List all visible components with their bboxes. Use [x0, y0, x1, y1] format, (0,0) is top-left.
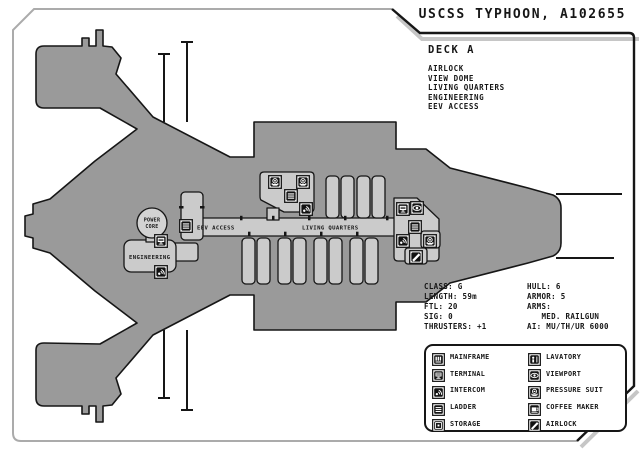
legend-column-right: LAVATORYVIEWPORTPRESSURE SUITCOFFEE MAKE…	[528, 349, 624, 430]
stats-column-right: HULL: 6ARMOR: 5ARMS: MED. RAILGUNAI: MU/…	[527, 282, 630, 332]
icon-legend: MAINFRAMETERMINALINTERCOMLADDERSTORAGE L…	[424, 344, 627, 432]
intercom-icon	[299, 201, 313, 215]
terminal-icon	[432, 367, 445, 380]
ladder-icon	[432, 401, 445, 414]
bunk	[278, 238, 291, 284]
bunk	[372, 176, 385, 218]
lavatory-icon	[528, 351, 541, 364]
stat-line: CLASS: G	[424, 282, 527, 292]
ship-registry-title: USCSS TYPHOON, A102655	[386, 7, 626, 22]
stat-line: SIG: 0	[424, 312, 527, 322]
pressure-suit-icon	[268, 174, 282, 188]
deck-feature: ENGINEERING	[428, 93, 505, 103]
legend-label: STORAGE	[450, 420, 481, 428]
deck-feature: AIRLOCK	[428, 64, 505, 74]
bunk	[357, 176, 370, 218]
airlock-icon	[528, 417, 541, 430]
legend-label: TERMINAL	[450, 370, 485, 378]
terminal-icon	[396, 201, 410, 215]
stat-line: AI: MU/TH/UR 6000	[527, 322, 630, 332]
intercom-icon	[154, 264, 168, 278]
pressure-suit-icon	[296, 174, 310, 188]
deck-feature: EEV ACCESS	[428, 102, 505, 112]
ladder-icon	[408, 219, 422, 233]
legend-label: AIRLOCK	[546, 420, 577, 428]
deck-feature-list: AIRLOCKVIEW DOMELIVING QUARTERSENGINEERI…	[428, 64, 505, 112]
stat-line: ARMS:	[527, 302, 630, 312]
engineering-label: ENGINEERING	[129, 255, 171, 261]
deck-feature: LIVING QUARTERS	[428, 83, 505, 93]
ship-stats: CLASS: GLENGTH: 59mFTL: 20SIG: 0THRUSTER…	[424, 282, 634, 332]
deck-plan-sheet: POWER CORE ENGINEERING EEV ACCESS LIVING…	[0, 0, 640, 452]
bunk	[341, 176, 354, 218]
pressure-suit-icon	[423, 233, 437, 247]
legend-row: PRESSURE SUIT	[528, 382, 624, 399]
legend-label: LADDER	[450, 403, 476, 411]
deck-info: DECK A AIRLOCKVIEW DOMELIVING QUARTERSEN…	[428, 44, 505, 112]
stat-line: LENGTH: 59m	[424, 292, 527, 302]
power-core-label-line1: POWER	[144, 218, 161, 224]
mainframe-icon	[432, 351, 445, 364]
deck-feature: VIEW DOME	[428, 74, 505, 84]
legend-row: STORAGE	[432, 415, 528, 432]
bunk	[293, 238, 306, 284]
legend-row: LAVATORY	[528, 349, 624, 366]
nose-antennas	[556, 194, 622, 258]
bunk	[350, 238, 363, 284]
legend-label: LAVATORY	[546, 353, 581, 361]
bunk	[326, 176, 339, 218]
intercom-icon	[396, 233, 410, 247]
legend-label: COFFEE MAKER	[546, 403, 599, 411]
pressure-suit-icon	[528, 384, 541, 397]
eev-access-label: EEV ACCESS	[197, 226, 235, 232]
viewport-icon	[410, 200, 424, 214]
legend-label: MAINFRAME	[450, 353, 490, 361]
power-core-label-line2: CORE	[145, 224, 158, 230]
legend-label: INTERCOM	[450, 386, 485, 394]
legend-column-left: MAINFRAMETERMINALINTERCOMLADDERSTORAGE	[432, 349, 528, 430]
legend-label: PRESSURE SUIT	[546, 386, 603, 394]
coffee-maker-icon	[528, 401, 541, 414]
legend-row: MAINFRAME	[432, 349, 528, 366]
stat-line: HULL: 6	[527, 282, 630, 292]
bunk	[365, 238, 378, 284]
viewport-icon	[528, 367, 541, 380]
stat-line: ARMOR: 5	[527, 292, 630, 302]
stat-line: MED. RAILGUN	[527, 312, 630, 322]
bunk	[242, 238, 255, 284]
terminal-icon	[154, 233, 168, 247]
stat-line: FTL: 20	[424, 302, 527, 312]
ladder-icon	[179, 218, 193, 232]
legend-row: LADDER	[432, 399, 528, 416]
stats-column-left: CLASS: GLENGTH: 59mFTL: 20SIG: 0THRUSTER…	[424, 282, 527, 332]
legend-row: VIEWPORT	[528, 366, 624, 383]
storage-icon	[432, 417, 445, 430]
ladder-icon	[284, 188, 298, 202]
intercom-icon	[432, 384, 445, 397]
legend-row: COFFEE MAKER	[528, 399, 624, 416]
legend-row: AIRLOCK	[528, 415, 624, 432]
airlock-icon	[409, 249, 423, 263]
legend-label: VIEWPORT	[546, 370, 581, 378]
deck-heading: DECK A	[428, 44, 505, 56]
bunk	[257, 238, 270, 284]
bunk	[329, 238, 342, 284]
stat-line: THRUSTERS: +1	[424, 322, 527, 332]
living-quarters-label: LIVING QUARTERS	[302, 226, 359, 232]
bunk	[314, 238, 327, 284]
legend-row: TERMINAL	[432, 366, 528, 383]
legend-row: INTERCOM	[432, 382, 528, 399]
